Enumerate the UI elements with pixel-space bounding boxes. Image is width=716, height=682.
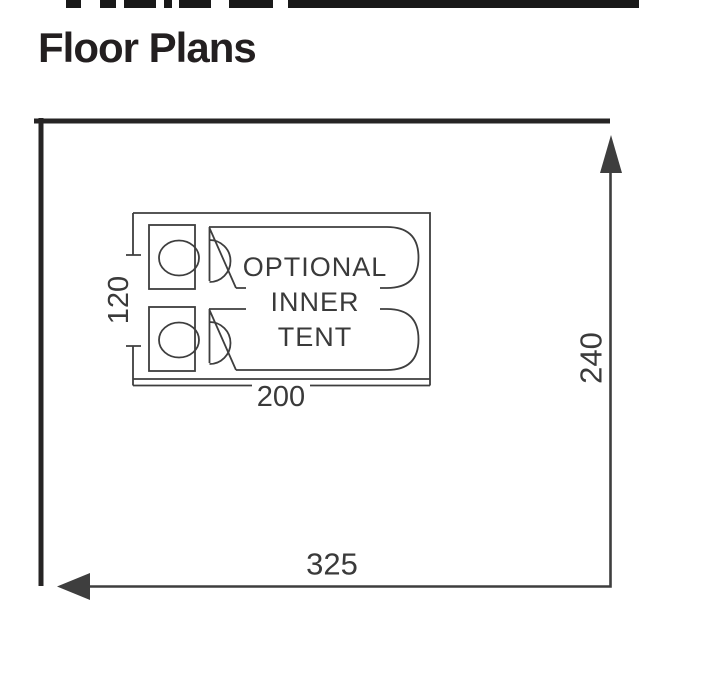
bag-fold bbox=[210, 309, 237, 370]
head-circle bbox=[159, 241, 199, 276]
floor-plan-diagram: 325 240 200 120 bbox=[0, 0, 716, 682]
pillow bbox=[149, 307, 195, 371]
up-arrowhead-icon bbox=[600, 135, 622, 173]
top-bar bbox=[66, 0, 639, 8]
bag-fold bbox=[210, 227, 237, 288]
pillow bbox=[149, 225, 195, 289]
left-arrowhead-icon bbox=[57, 573, 90, 600]
inner-width-label: 200 bbox=[257, 381, 305, 413]
caption-line-3: TENT bbox=[278, 322, 353, 352]
outer-dimension-lines: 325 240 bbox=[57, 135, 622, 600]
floor-plans-page: Floor Plans 325 240 bbox=[0, 0, 716, 682]
caption-line-2: INNER bbox=[270, 287, 359, 317]
bag-hood bbox=[210, 322, 231, 364]
caption-line-1: OPTIONAL bbox=[243, 252, 388, 282]
inner-height-label: 120 bbox=[103, 276, 135, 324]
outer-height-label: 240 bbox=[574, 332, 609, 384]
head-circle bbox=[159, 323, 199, 358]
bag-hood bbox=[210, 240, 231, 282]
outer-width-label: 325 bbox=[306, 547, 358, 582]
